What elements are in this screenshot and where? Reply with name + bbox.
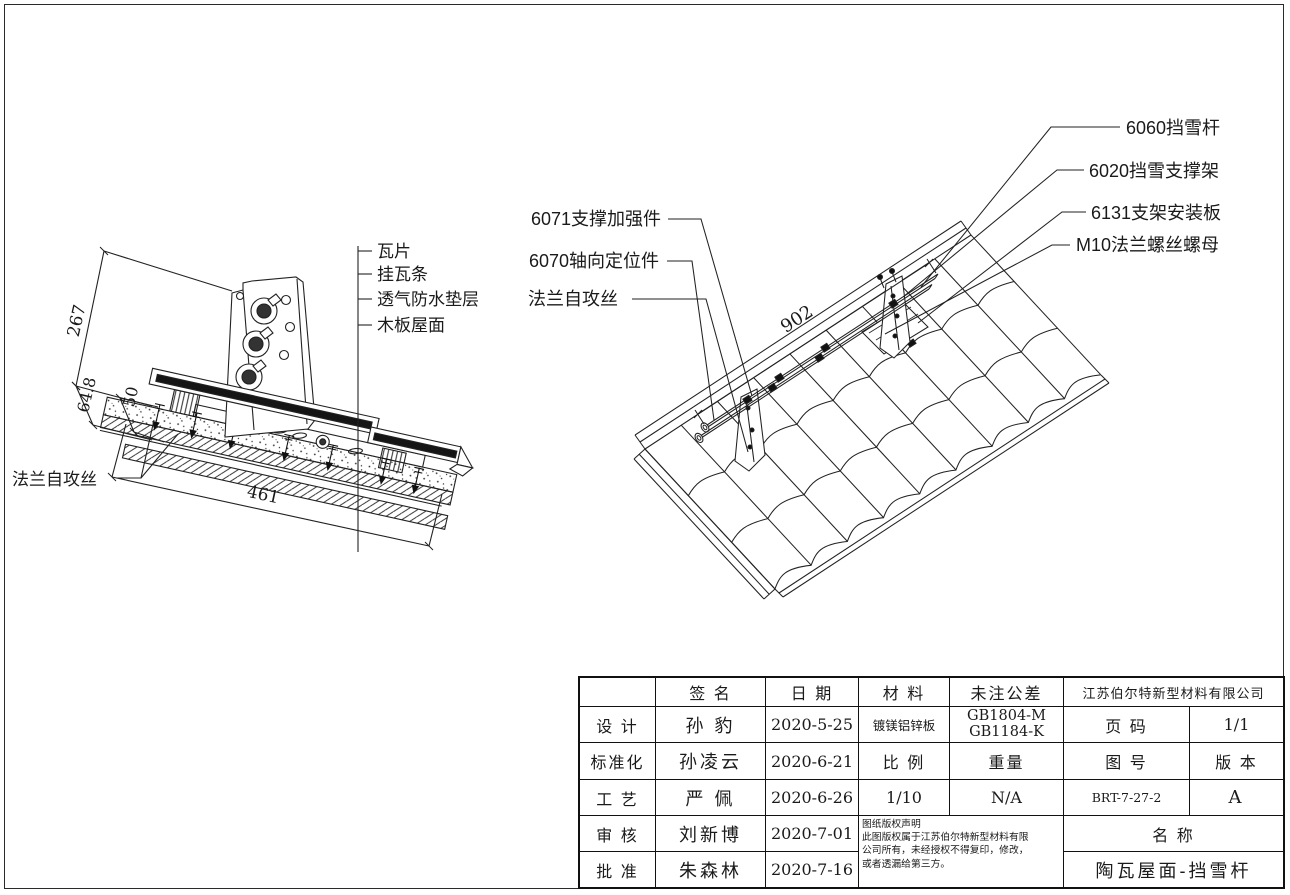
label-snow-rod: 6060挡雪杆 <box>1126 118 1220 138</box>
gable-boards <box>634 449 775 599</box>
tb-copyright-line2: 此图版权属于江苏伯尔特新型材料有限 <box>862 831 1029 844</box>
tb-drawing-title: 陶瓦屋面-挡雪杆 <box>1064 852 1283 887</box>
tb-copyright-line3: 公司所有，未经授权不得复印，修改， <box>862 844 1029 857</box>
tb-version-label: 版 本 <box>1190 743 1283 780</box>
tb-name-approve: 朱森林 <box>656 852 766 887</box>
label-mount-plate: 6131支架安装板 <box>1091 203 1221 223</box>
tb-drawing-no-value: BRT-7-27-2 <box>1064 780 1190 816</box>
tb-version-value: A <box>1190 780 1283 816</box>
label-membrane: 透气防水垫层 <box>377 290 479 309</box>
tb-page-value: 1/1 <box>1190 707 1283 743</box>
tb-copyright-notice: 图纸版权声明 此图版权属于江苏伯尔特新型材料有限 公司所有，未经授权不得复印，修… <box>859 816 1064 887</box>
tb-role-approve: 批 准 <box>580 852 656 887</box>
title-block: 签 名 日 期 材 料 未注公差 江苏伯尔特新型材料有限公司 设 计 孙 豹 2… <box>578 676 1285 889</box>
label-screw-section: 法兰自攻丝 <box>12 470 97 489</box>
tb-date-review: 2020-7-01 <box>766 816 859 852</box>
label-reinforcement: 6071支撑加强件 <box>531 209 661 229</box>
tb-header-date: 日 期 <box>766 678 859 707</box>
tb-drawing-no-label: 图 号 <box>1064 743 1190 780</box>
tb-company: 江苏伯尔特新型材料有限公司 <box>1064 678 1283 707</box>
tb-empty <box>580 678 656 707</box>
tb-copyright-line1: 图纸版权声明 <box>862 818 921 831</box>
tb-role-process: 工 艺 <box>580 780 656 816</box>
tb-name-design: 孙 豹 <box>656 707 766 743</box>
svg-text:902: 902 <box>777 301 817 337</box>
tb-header-tolerance: 未注公差 <box>950 678 1064 707</box>
tb-page-label: 页 码 <box>1064 707 1190 743</box>
tb-scale-label: 比 例 <box>859 743 950 780</box>
eave-boards <box>775 375 1109 597</box>
tb-header-signature: 签 名 <box>656 678 766 707</box>
tb-name-label: 名 称 <box>1064 816 1283 852</box>
tb-name-review: 刘新博 <box>656 816 766 852</box>
label-tile: 瓦片 <box>377 242 411 261</box>
label-screw-iso: 法兰自攻丝 <box>528 289 618 309</box>
tb-role-review: 审 核 <box>580 816 656 852</box>
tb-weight-value: N/A <box>950 780 1064 816</box>
tb-header-material: 材 料 <box>859 678 950 707</box>
tb-tolerance-value: GB1804-M GB1184-K <box>950 707 1064 743</box>
tb-role-design: 设 计 <box>580 707 656 743</box>
label-axial-positioner: 6070轴向定位件 <box>529 251 659 271</box>
tb-tolerance-line2: GB1184-K <box>969 725 1044 740</box>
tb-date-process: 2020-6-26 <box>766 780 859 816</box>
label-snow-bracket: 6020挡雪支撑架 <box>1089 161 1219 181</box>
tb-scale-value: 1/10 <box>859 780 950 816</box>
label-m10-nut: M10法兰螺丝螺母 <box>1076 235 1219 255</box>
tb-date-design: 2020-5-25 <box>766 707 859 743</box>
tb-copyright-line4: 或者透漏给第三方。 <box>862 858 950 871</box>
isometric-view: 902 6060挡雪杆 6020挡雪支撑架 6131支架安装板 M10法兰螺丝螺… <box>528 118 1221 599</box>
tb-name-process: 严 佩 <box>656 780 766 816</box>
label-batten: 挂瓦条 <box>377 265 428 284</box>
tb-name-standardization: 孙凌云 <box>656 743 766 780</box>
section-view: 瓦片 挂瓦条 透气防水垫层 木板屋面 法兰自攻丝 267 <box>12 242 479 552</box>
drawing-sheet: 瓦片 挂瓦条 透气防水垫层 木板屋面 法兰自攻丝 267 <box>0 0 1290 895</box>
label-wood-roof: 木板屋面 <box>377 316 445 335</box>
tb-tolerance-line1: GB1804-M <box>967 709 1046 724</box>
tb-date-standardization: 2020-6-21 <box>766 743 859 780</box>
tb-role-standardization: 标准化 <box>580 743 656 780</box>
iso-leaders-right <box>885 127 1120 334</box>
tb-weight-label: 重量 <box>950 743 1064 780</box>
tb-material-value: 镀镁铝锌板 <box>859 707 950 743</box>
tb-date-approve: 2020-7-16 <box>766 852 859 887</box>
